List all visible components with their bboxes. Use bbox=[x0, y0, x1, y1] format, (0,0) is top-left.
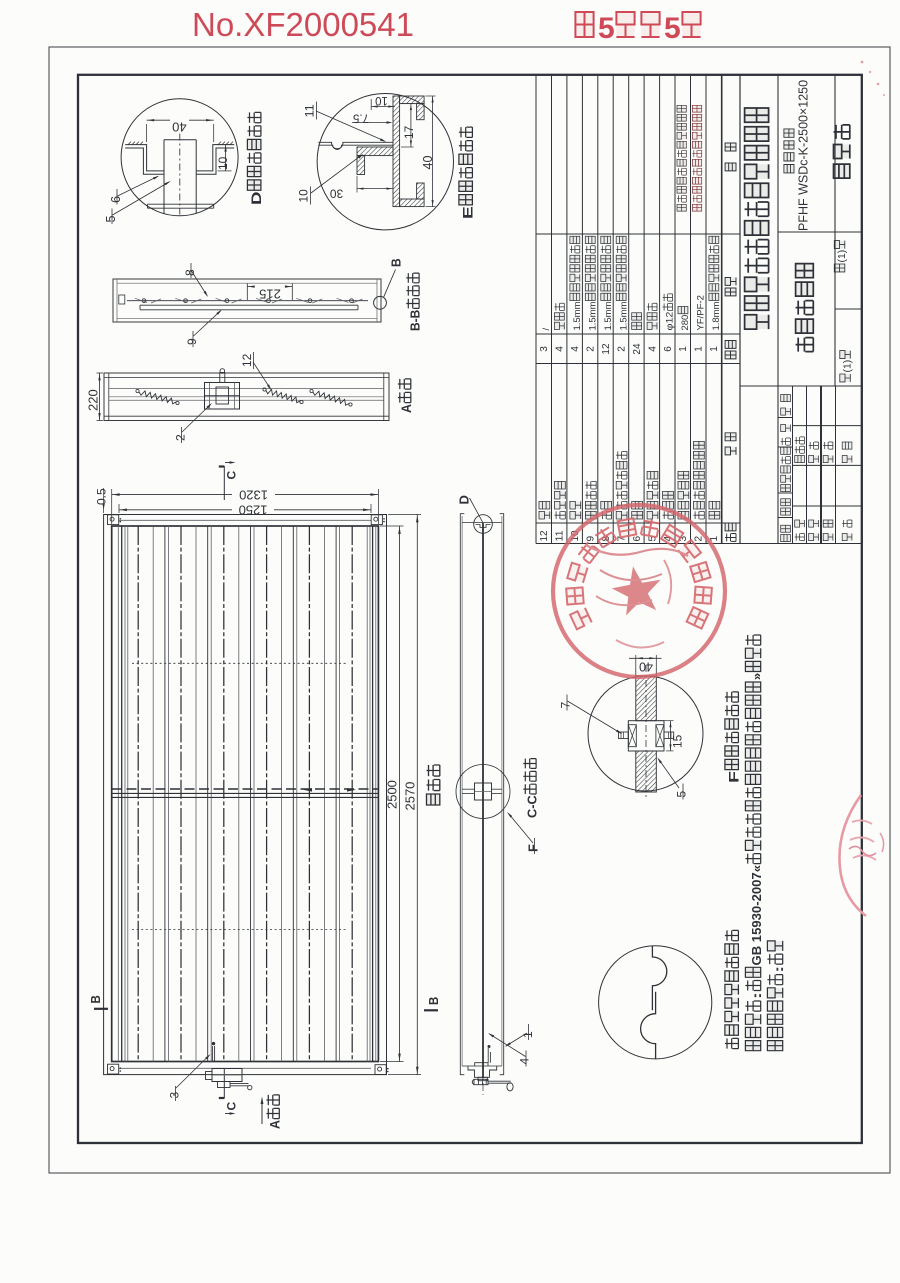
svg-text:D: D bbox=[457, 495, 472, 504]
svg-text:2500: 2500 bbox=[385, 780, 400, 809]
svg-text:10: 10 bbox=[216, 156, 230, 170]
svg-text:220: 220 bbox=[86, 389, 101, 411]
svg-text:1.5mm: 1.5mm bbox=[603, 301, 614, 330]
svg-text:φ12: φ12 bbox=[665, 312, 676, 331]
svg-text:5: 5 bbox=[675, 790, 689, 797]
svg-text:1: 1 bbox=[678, 346, 689, 352]
svg-text:5: 5 bbox=[598, 12, 615, 45]
svg-text:1.5mm: 1.5mm bbox=[587, 301, 598, 330]
svg-text:40: 40 bbox=[172, 120, 187, 135]
svg-text::: : bbox=[771, 966, 786, 973]
svg-text:1320: 1320 bbox=[239, 487, 268, 502]
svg-text:/: / bbox=[541, 328, 552, 331]
svg-text:C: C bbox=[225, 470, 239, 479]
svg-text:1.5mm: 1.5mm bbox=[618, 301, 629, 330]
svg-text:E: E bbox=[461, 206, 476, 219]
svg-text:F: F bbox=[526, 844, 541, 852]
svg-text:3: 3 bbox=[168, 1091, 182, 1098]
svg-text:No.XF2000541: No.XF2000541 bbox=[192, 6, 414, 43]
svg-text:D: D bbox=[249, 191, 264, 205]
svg-text:B: B bbox=[389, 258, 404, 267]
svg-text:0.5: 0.5 bbox=[95, 488, 109, 505]
svg-text:10: 10 bbox=[297, 189, 311, 203]
svg-text:10: 10 bbox=[375, 94, 388, 106]
svg-text:1: 1 bbox=[709, 346, 720, 352]
svg-text:C: C bbox=[225, 1101, 239, 1110]
svg-text:11: 11 bbox=[555, 530, 566, 542]
svg-text:9: 9 bbox=[185, 338, 199, 345]
svg-text:4: 4 bbox=[647, 346, 658, 352]
svg-text:12: 12 bbox=[240, 353, 254, 367]
svg-text:YF/PF-2: YF/PF-2 bbox=[696, 295, 707, 330]
svg-text:C-C: C-C bbox=[524, 795, 539, 818]
svg-text:1.5mm: 1.5mm bbox=[572, 301, 583, 330]
svg-text:24: 24 bbox=[632, 343, 643, 355]
svg-text:(1): (1) bbox=[836, 250, 848, 263]
svg-text:40: 40 bbox=[421, 156, 435, 170]
svg-text:215: 215 bbox=[259, 286, 281, 301]
svg-text::: : bbox=[749, 992, 764, 999]
svg-text:PFHF WSDc-K-2500×1250: PFHF WSDc-K-2500×1250 bbox=[797, 80, 811, 231]
svg-text:15: 15 bbox=[671, 734, 685, 748]
svg-text:40: 40 bbox=[639, 660, 653, 674]
svg-text:6: 6 bbox=[632, 535, 643, 541]
svg-text:2: 2 bbox=[586, 346, 597, 352]
svg-text:4: 4 bbox=[570, 346, 581, 352]
svg-text:F: F bbox=[727, 771, 742, 783]
svg-text:7.5: 7.5 bbox=[353, 111, 369, 123]
svg-text:280: 280 bbox=[680, 315, 691, 331]
svg-text:1.8mm: 1.8mm bbox=[711, 301, 722, 330]
svg-text:1: 1 bbox=[694, 346, 705, 352]
svg-text:B-B: B-B bbox=[407, 310, 422, 331]
svg-text:2: 2 bbox=[617, 346, 628, 352]
svg-text:5: 5 bbox=[104, 215, 118, 222]
svg-text:B: B bbox=[89, 995, 103, 1003]
svg-text:5: 5 bbox=[664, 12, 681, 45]
svg-text:2570: 2570 bbox=[402, 782, 417, 811]
svg-text:6: 6 bbox=[109, 196, 123, 203]
svg-text:1250: 1250 bbox=[239, 503, 268, 518]
svg-text:B: B bbox=[427, 997, 441, 1005]
svg-text:8: 8 bbox=[183, 269, 197, 276]
svg-text:4: 4 bbox=[518, 1057, 532, 1064]
svg-text:A: A bbox=[268, 1120, 283, 1129]
svg-text:A: A bbox=[399, 404, 414, 413]
svg-text:11: 11 bbox=[303, 104, 317, 118]
svg-text:12: 12 bbox=[539, 530, 550, 542]
svg-text:30: 30 bbox=[330, 186, 344, 200]
svg-text:4: 4 bbox=[555, 346, 566, 352]
svg-text:(1): (1) bbox=[842, 360, 854, 373]
svg-text:GB 15930-2007«: GB 15930-2007« bbox=[749, 865, 764, 966]
svg-text:2: 2 bbox=[174, 434, 188, 441]
svg-text:17: 17 bbox=[402, 125, 416, 139]
svg-text:9: 9 bbox=[586, 535, 597, 541]
svg-text:12: 12 bbox=[601, 343, 612, 355]
svg-text:3: 3 bbox=[539, 346, 550, 352]
svg-text:»: » bbox=[749, 673, 764, 680]
svg-text:6: 6 bbox=[663, 346, 674, 352]
